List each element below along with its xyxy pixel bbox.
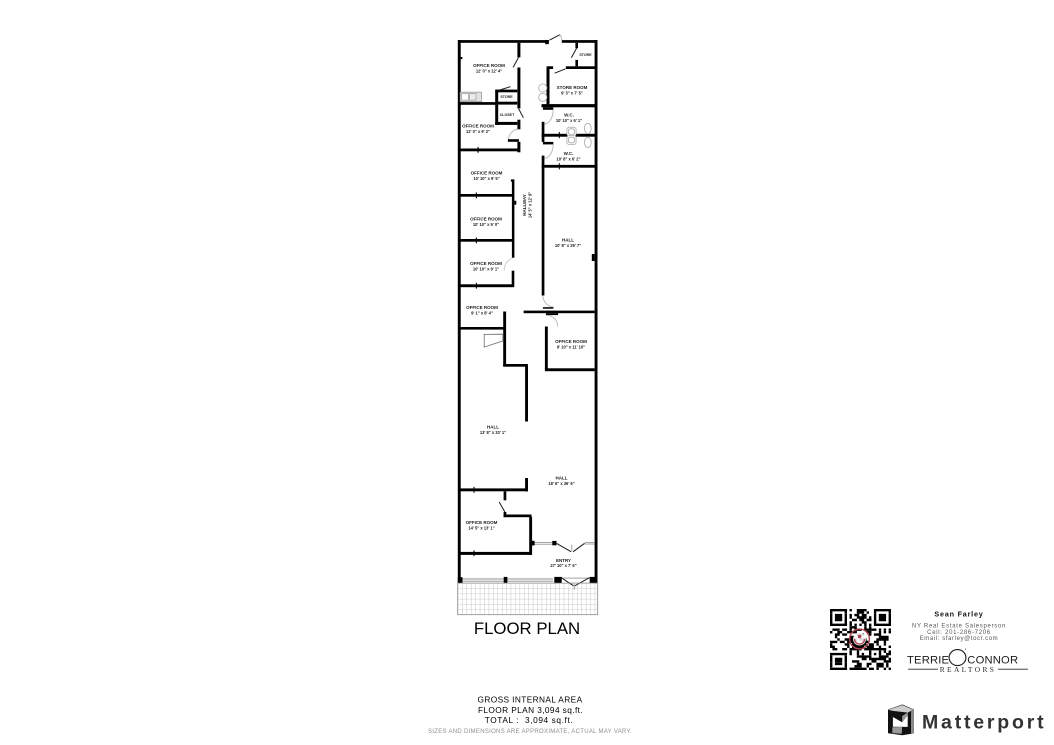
svg-text:CLOSET: CLOSET [500, 113, 515, 117]
svg-text:OFFICE ROOM: OFFICE ROOM [555, 339, 587, 344]
svg-text:FLOOR PLAN 3,094 sq.ft.: FLOOR PLAN 3,094 sq.ft. [478, 705, 583, 715]
svg-text:OFFICE ROOM: OFFICE ROOM [466, 305, 498, 310]
svg-text:10' 10" x 6' 1": 10' 10" x 6' 1" [556, 118, 582, 123]
svg-text:18' 6" x 36' 6": 18' 6" x 36' 6" [548, 481, 574, 486]
svg-text:14' 5" x 13' 1": 14' 5" x 13' 1" [468, 526, 494, 531]
svg-text:Sean Farley: Sean Farley [934, 610, 983, 619]
svg-text:GROSS INTERNAL AREA: GROSS INTERNAL AREA [477, 695, 582, 705]
svg-text:OFFICE ROOM: OFFICE ROOM [466, 520, 498, 525]
svg-text:12' 0" x 9' 2": 12' 0" x 9' 2" [466, 129, 490, 134]
svg-text:OFFICE ROOM: OFFICE ROOM [470, 217, 502, 222]
svg-text:OFFICE ROOM: OFFICE ROOM [473, 63, 505, 68]
svg-text:Matterport: Matterport [922, 712, 1046, 734]
svg-text:REALTORS: REALTORS [940, 665, 997, 674]
svg-text:Email: sfarley@tocr.com: Email: sfarley@tocr.com [920, 636, 999, 642]
svg-text:W.C.: W.C. [564, 151, 574, 156]
svg-text:9' 10" x 11' 10": 9' 10" x 11' 10" [557, 345, 585, 350]
svg-text:9' 1" x 8' 4": 9' 1" x 8' 4" [471, 311, 493, 316]
svg-text:10' 8" x 29' 7": 10' 8" x 29' 7" [555, 243, 581, 248]
svg-text:10' 8" x 6' 2": 10' 8" x 6' 2" [556, 157, 580, 162]
svg-text:12' 0" x 12' 4": 12' 0" x 12' 4" [476, 69, 502, 74]
svg-text:HALLWAY: HALLWAY [522, 194, 527, 216]
svg-text:27' 10" x 7' 6": 27' 10" x 7' 6" [550, 563, 576, 568]
svg-text:OFFICE ROOM: OFFICE ROOM [470, 261, 502, 266]
svg-text:HALL: HALL [556, 476, 568, 481]
svg-text:10' 10" x 9' 5": 10' 10" x 9' 5" [473, 176, 499, 181]
svg-text:14' 5" x 12' 9": 14' 5" x 12' 9" [528, 192, 533, 218]
svg-text:HALL: HALL [487, 425, 499, 430]
svg-text:9' 3" x 7' 5": 9' 3" x 7' 5" [561, 91, 583, 96]
svg-text:W.C.: W.C. [564, 113, 574, 118]
svg-text:FLOOR PLAN: FLOOR PLAN [474, 619, 580, 638]
svg-text:NY Real Estate Salesperson: NY Real Estate Salesperson [912, 624, 1006, 630]
svg-text:SIZES AND DIMENSIONS ARE APPRO: SIZES AND DIMENSIONS ARE APPROXIMATE, AC… [428, 729, 632, 735]
svg-text:10' 10" x 9' 1": 10' 10" x 9' 1" [473, 267, 499, 272]
svg-text:STORE ROOM: STORE ROOM [557, 85, 588, 90]
svg-text:STORE: STORE [500, 95, 513, 99]
svg-text:OFFICE ROOM: OFFICE ROOM [471, 171, 503, 176]
svg-text:13' 8" x 33' 1": 13' 8" x 33' 1" [480, 430, 506, 435]
svg-text:10' 10" x 9' 0": 10' 10" x 9' 0" [473, 222, 499, 227]
svg-text:TOTAL : 3,094 sq.ft.: TOTAL : 3,094 sq.ft. [485, 715, 574, 725]
svg-text:OFFICE ROOM: OFFICE ROOM [462, 124, 494, 129]
svg-text:HALL: HALL [562, 238, 574, 243]
svg-text:STORE: STORE [579, 53, 592, 57]
